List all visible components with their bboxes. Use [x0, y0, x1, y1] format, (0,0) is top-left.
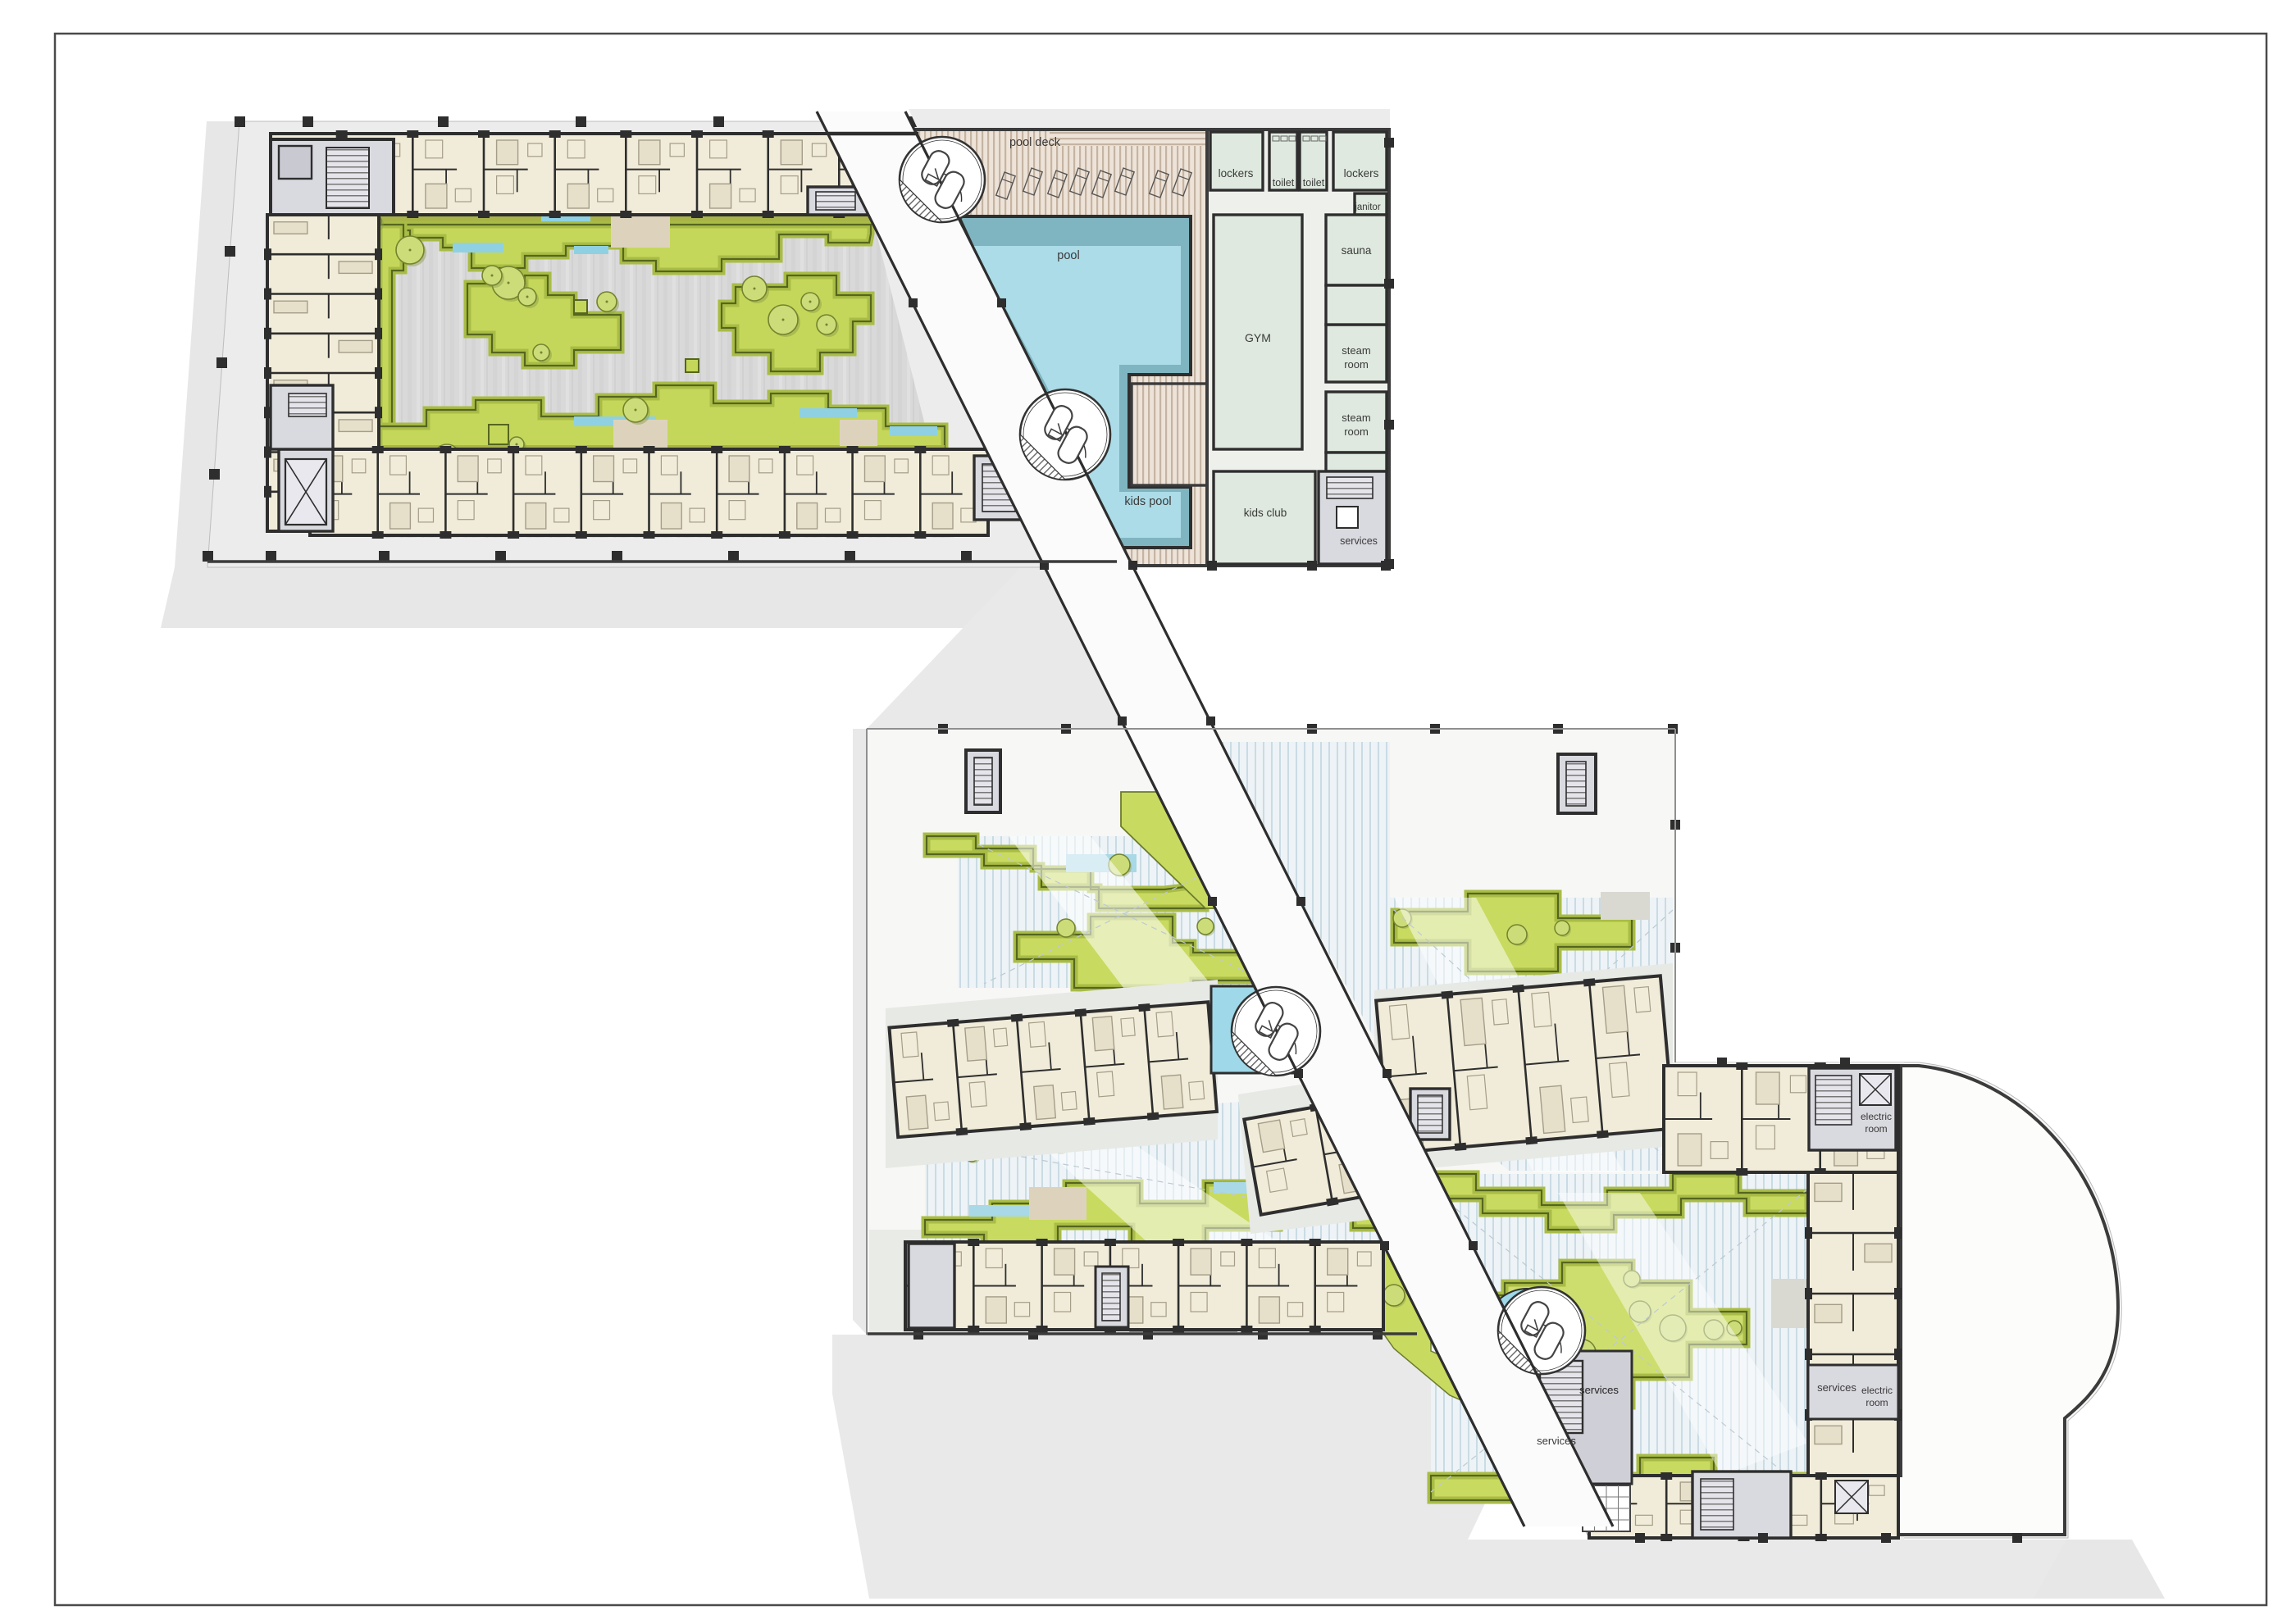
svg-text:lockers: lockers: [1344, 167, 1379, 180]
svg-text:steam: steam: [1342, 412, 1370, 424]
svg-text:services: services: [1537, 1435, 1576, 1447]
svg-text:room: room: [1344, 358, 1369, 371]
svg-text:pool: pool: [1057, 249, 1079, 262]
svg-text:services: services: [1340, 535, 1378, 547]
svg-text:lockers: lockers: [1219, 167, 1254, 180]
svg-text:kids pool: kids pool: [1124, 495, 1171, 508]
svg-text:services: services: [1579, 1384, 1619, 1396]
svg-text:pool deck: pool deck: [1009, 136, 1061, 149]
svg-text:services: services: [1817, 1381, 1856, 1394]
svg-text:toilet: toilet: [1273, 177, 1295, 189]
svg-text:room: room: [1865, 1397, 1888, 1408]
svg-text:GYM: GYM: [1245, 331, 1271, 344]
svg-text:electric: electric: [1861, 1385, 1893, 1396]
svg-text:room: room: [1865, 1123, 1887, 1135]
svg-text:sauna: sauna: [1342, 244, 1372, 257]
svg-text:steam: steam: [1342, 344, 1370, 357]
svg-text:toilet: toilet: [1303, 177, 1325, 189]
svg-text:electric: electric: [1861, 1111, 1892, 1122]
svg-text:room: room: [1344, 425, 1369, 438]
svg-text:kids club: kids club: [1244, 507, 1287, 519]
svg-text:janitor: janitor: [1354, 202, 1380, 212]
